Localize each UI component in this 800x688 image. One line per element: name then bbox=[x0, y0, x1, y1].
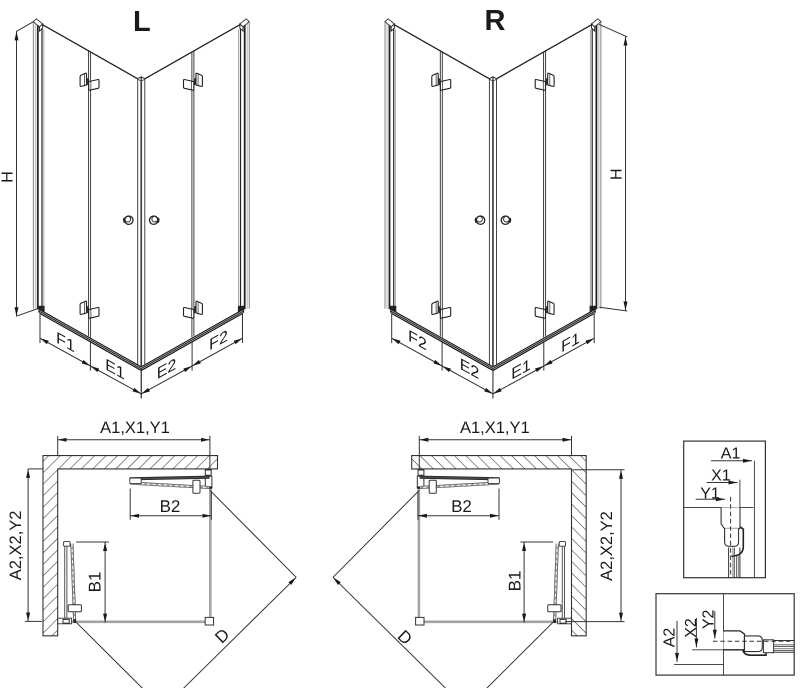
svg-text:H: H bbox=[609, 168, 626, 180]
svg-text:X1: X1 bbox=[711, 467, 731, 484]
svg-text:B1: B1 bbox=[505, 571, 524, 592]
svg-text:R: R bbox=[485, 5, 506, 37]
svg-text:H: H bbox=[0, 171, 17, 183]
svg-text:A1,X1,Y1: A1,X1,Y1 bbox=[100, 419, 170, 437]
svg-text:B2: B2 bbox=[451, 497, 472, 516]
svg-text:A1,X1,Y1: A1,X1,Y1 bbox=[460, 419, 530, 437]
svg-text:A2,X2,Y2: A2,X2,Y2 bbox=[7, 511, 25, 581]
svg-text:L: L bbox=[133, 6, 151, 38]
svg-text:X2: X2 bbox=[683, 618, 700, 638]
svg-text:A2: A2 bbox=[661, 628, 678, 648]
svg-text:B2: B2 bbox=[160, 497, 181, 516]
svg-text:Y2: Y2 bbox=[700, 610, 717, 630]
svg-text:Y1: Y1 bbox=[700, 485, 720, 502]
svg-text:A2,X2,Y2: A2,X2,Y2 bbox=[598, 511, 616, 581]
svg-text:A1: A1 bbox=[721, 446, 741, 463]
svg-text:B1: B1 bbox=[86, 572, 105, 593]
